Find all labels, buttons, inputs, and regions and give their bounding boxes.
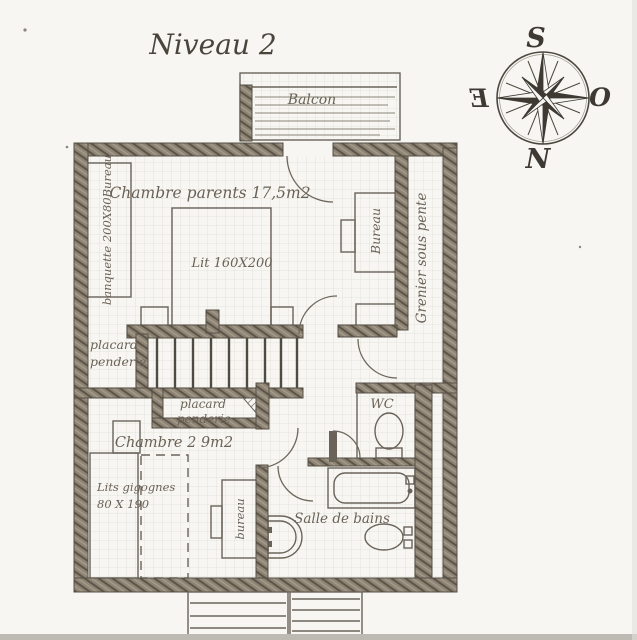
closet-stairs-label-1: placard bbox=[180, 397, 226, 411]
attic-label: Grenier sous pente bbox=[414, 193, 430, 324]
bedroom2-desk-label: bureau bbox=[233, 498, 247, 539]
bench-label: banquette 200X80Bureau bbox=[100, 155, 114, 305]
wall-right bbox=[443, 148, 457, 592]
nesting-beds-label-1: Lits gigognes bbox=[96, 480, 175, 494]
wall-wc-top bbox=[356, 383, 457, 393]
wall-top-left bbox=[74, 143, 283, 156]
wall-bathroom-right bbox=[415, 385, 432, 578]
bathroom-label: Salle de bains bbox=[294, 511, 390, 527]
wall-bottom bbox=[74, 578, 457, 592]
wall-bedroom2-bathroom bbox=[256, 465, 268, 578]
balcony-label: Balcon bbox=[287, 92, 336, 108]
wall-closet2-right bbox=[256, 383, 269, 429]
page-title: Niveau 2 bbox=[148, 28, 276, 61]
wall-stub-master bbox=[206, 310, 219, 333]
wall-balcony-left bbox=[240, 85, 252, 141]
wc-label: WC bbox=[370, 397, 393, 412]
closet-left-label-2: penderie bbox=[90, 354, 146, 369]
closet-stairs-label-2: penderie bbox=[177, 412, 231, 426]
compass-north-label: N bbox=[525, 144, 552, 175]
compass-south-label: S bbox=[526, 23, 546, 54]
scan-bottom-band bbox=[0, 634, 637, 640]
master-desk-label: Bureau bbox=[368, 208, 383, 255]
wc-door-leaf bbox=[329, 431, 337, 462]
compass-west-label: O bbox=[589, 83, 611, 112]
master-bedroom-label: Chambre parents 17,5m2 bbox=[109, 184, 310, 202]
wall-master-south-right bbox=[338, 325, 397, 337]
wall-attic-left bbox=[395, 156, 408, 330]
floor-plan-page: Niveau 2 Balcon Chambre parents 17,5m2 L… bbox=[0, 0, 637, 640]
closet-left-label-1: placard bbox=[90, 337, 138, 352]
scan-right-band bbox=[632, 0, 637, 640]
nesting-beds-label-2: 80 X 190 bbox=[97, 497, 149, 511]
bedroom2-label: Chambre 2 9m2 bbox=[115, 435, 233, 451]
compass-east-label: E bbox=[469, 84, 490, 113]
wall-wc-bottom bbox=[308, 458, 415, 466]
floor-plan: Niveau 2 Balcon Chambre parents 17,5m2 L… bbox=[0, 0, 637, 640]
wall-top-right bbox=[333, 143, 457, 156]
wall-left bbox=[74, 143, 88, 592]
master-bed-label: Lit 160X200 bbox=[190, 256, 272, 271]
